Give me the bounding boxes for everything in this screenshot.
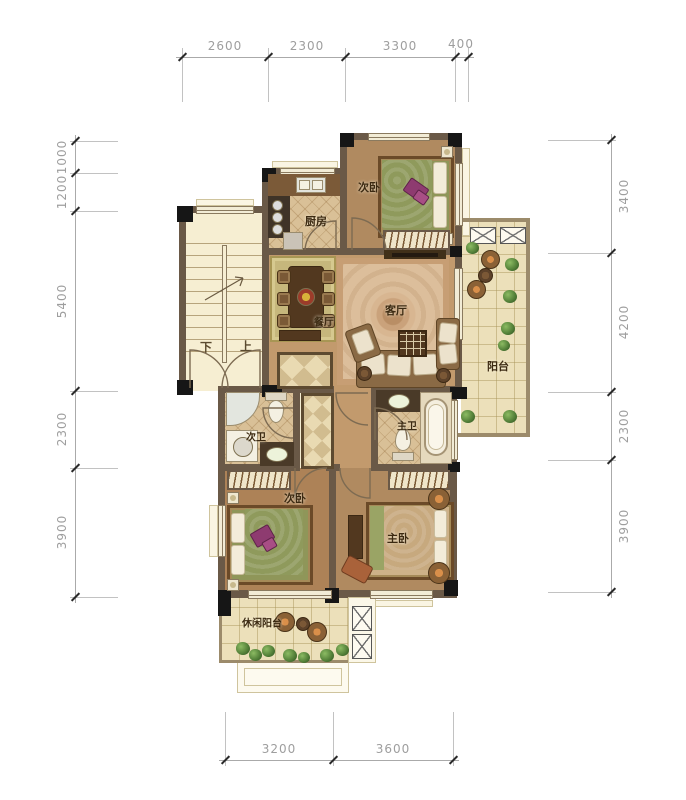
dining-chair: [277, 314, 291, 328]
column: [177, 380, 193, 395]
centerpiece: [297, 288, 315, 306]
window: [368, 133, 430, 141]
fridge: [283, 232, 303, 250]
wardrobe: [383, 230, 450, 250]
dim-left-2: 1200: [55, 175, 69, 210]
room-label-bath-secondary: 次卫: [246, 429, 266, 444]
dim-right-3: 2300: [617, 409, 631, 444]
witness-line: [70, 391, 118, 392]
plant: [320, 649, 334, 662]
dim-bottom-1: 3200: [262, 742, 297, 756]
coffee-table: [398, 330, 427, 357]
room-label-bedroom-second: 次卧: [284, 490, 306, 506]
dim-left-3: 5400: [55, 284, 69, 319]
plant: [298, 652, 310, 663]
wall: [340, 133, 347, 255]
column: [340, 133, 354, 147]
dim-right-1: 3400: [617, 179, 631, 214]
witness-line: [548, 253, 616, 254]
witness-line: [70, 211, 118, 212]
bay-ledge: [462, 148, 470, 236]
dim-top-2: 2300: [290, 39, 325, 53]
window: [218, 505, 226, 557]
side-table: [357, 366, 372, 381]
column: [450, 387, 467, 399]
bed-pillow: [231, 545, 245, 575]
ac-xbox: [352, 606, 372, 631]
chair-cushion: [438, 322, 458, 344]
plant: [505, 258, 519, 271]
dim-bottom-2: 3600: [376, 742, 411, 756]
bedroom-chair: [428, 488, 450, 510]
witness-line: [548, 460, 616, 461]
console-table: [279, 330, 321, 341]
hall-runner-rug: [301, 393, 334, 469]
bed-pillow: [434, 510, 447, 538]
terrace-inner: [244, 668, 342, 686]
window: [370, 590, 433, 599]
dining-chair: [321, 292, 335, 306]
dining-chair: [277, 292, 291, 306]
wall: [329, 464, 336, 598]
bed-throw: [370, 506, 384, 570]
dimension-line: [75, 135, 76, 603]
dim-left-5: 3900: [55, 515, 69, 550]
master-sill: [370, 600, 433, 607]
vanity-basin: [266, 447, 288, 462]
balcony-wall: [458, 218, 530, 222]
wall: [218, 386, 225, 598]
room-label-dining: 餐厅: [314, 314, 334, 329]
dim-top-3: 3300: [383, 39, 418, 53]
column: [177, 206, 193, 222]
dimension-line: [611, 134, 612, 598]
stair-sill: [196, 199, 254, 206]
balcony-wall: [526, 218, 530, 437]
balcony-wall: [455, 433, 530, 437]
plant: [236, 642, 250, 655]
room-label-bath-master: 主卫: [397, 418, 417, 433]
room-label-bedroom-top: 次卧: [358, 179, 380, 195]
column: [448, 133, 462, 147]
room-label-bedroom-master: 主卧: [387, 530, 409, 546]
stair-rail: [222, 245, 227, 363]
witness-line: [548, 140, 616, 141]
dresser: [348, 515, 363, 559]
sofa-cushion: [386, 354, 411, 376]
nightstand: [441, 146, 453, 158]
window: [455, 163, 463, 226]
stair-up-label: 上: [240, 338, 252, 355]
balcony-chair: [307, 622, 327, 642]
column: [218, 590, 231, 616]
vestibule-floor: [334, 390, 374, 468]
plant: [461, 410, 475, 423]
wardrobe: [227, 470, 291, 490]
balcony-table: [478, 268, 493, 283]
plant: [466, 242, 479, 254]
room-label-kitchen: 厨房: [305, 213, 327, 229]
witness-line: [70, 141, 118, 142]
wall: [293, 386, 300, 471]
witness-line: [70, 597, 118, 598]
burner: [272, 224, 283, 235]
floor-plan-canvas: 2600 2300 3300 400 1000 1200 5400 2300 3…: [0, 0, 686, 800]
witness-line: [548, 392, 616, 393]
column: [450, 246, 462, 257]
balcony-table: [296, 617, 310, 631]
leisure-slider: [248, 590, 332, 599]
plant: [249, 649, 262, 661]
witness-line: [548, 592, 616, 593]
bed-pillow: [433, 162, 447, 194]
dim-right-2: 4200: [617, 305, 631, 340]
balcony-chair: [481, 250, 500, 269]
plant: [501, 322, 515, 335]
witness-line: [70, 173, 118, 174]
dining-chair: [277, 270, 291, 284]
plant: [498, 340, 510, 351]
plant: [262, 645, 275, 657]
burner: [272, 212, 283, 223]
side-table: [436, 368, 451, 383]
nightstand: [227, 492, 239, 504]
dimension-line: [176, 57, 474, 58]
room-label-balcony-leisure: 休闲阳台: [242, 615, 282, 630]
kitchen-sill: [272, 161, 338, 168]
column: [444, 580, 458, 596]
foyer-rug: [277, 352, 333, 389]
dining-chair: [321, 270, 335, 284]
dim-right-4: 3900: [617, 509, 631, 544]
room-label-living: 客厅: [385, 302, 407, 318]
planter-xbox: [500, 227, 526, 244]
room-label-balcony: 阳台: [487, 358, 509, 374]
witness-line: [70, 468, 118, 469]
sink-basin: [299, 180, 310, 190]
sink-basin: [312, 180, 323, 190]
wall: [179, 206, 186, 393]
plant: [503, 410, 517, 423]
plant: [503, 290, 517, 303]
bathtub-inner: [428, 404, 444, 450]
ac-xbox: [352, 634, 372, 659]
plant: [283, 649, 297, 662]
bedroom-sill: [209, 505, 218, 557]
bedroom-chair: [428, 562, 450, 584]
wardrobe: [388, 470, 450, 490]
chair-cushion: [438, 343, 458, 365]
bed-pillow: [231, 513, 245, 543]
dim-top-1: 2600: [208, 39, 243, 53]
dim-left-1: 1000: [55, 140, 69, 175]
dim-top-4: 400: [448, 37, 474, 51]
dim-left-4: 2300: [55, 412, 69, 447]
tv: [392, 253, 438, 257]
stair-down-label: 下: [200, 339, 212, 356]
window: [196, 206, 254, 214]
toilet-tank: [392, 452, 414, 461]
nightstand: [227, 579, 239, 591]
burner: [272, 200, 283, 211]
bed-pillow: [433, 196, 447, 228]
dimension-line: [219, 760, 459, 761]
vanity-basin: [388, 394, 410, 409]
plant: [336, 644, 349, 656]
